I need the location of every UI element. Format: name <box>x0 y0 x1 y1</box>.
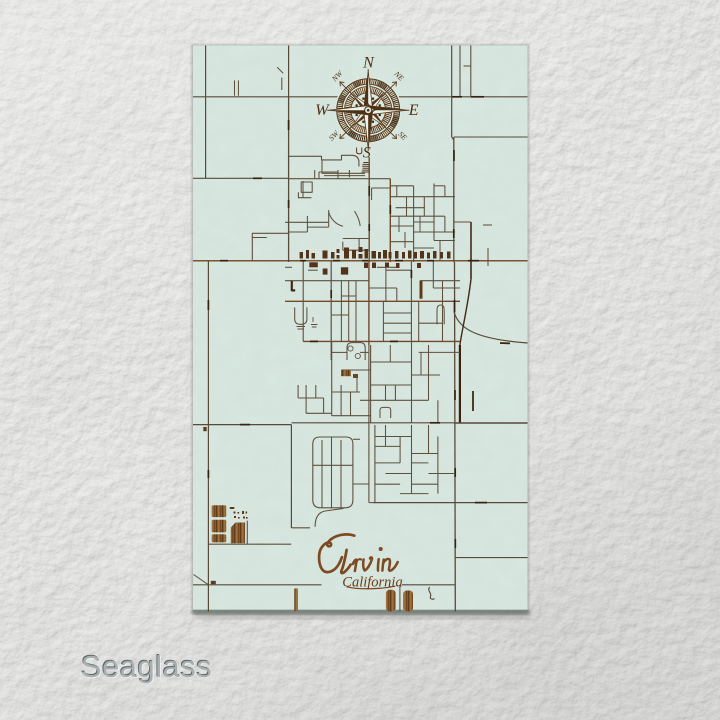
svg-text:E: E <box>408 102 419 119</box>
svg-text:W: W <box>315 102 330 119</box>
svg-text:N: N <box>362 55 375 72</box>
svg-text:Seaglass: Seaglass <box>81 649 213 684</box>
svg-text:S: S <box>363 145 371 162</box>
